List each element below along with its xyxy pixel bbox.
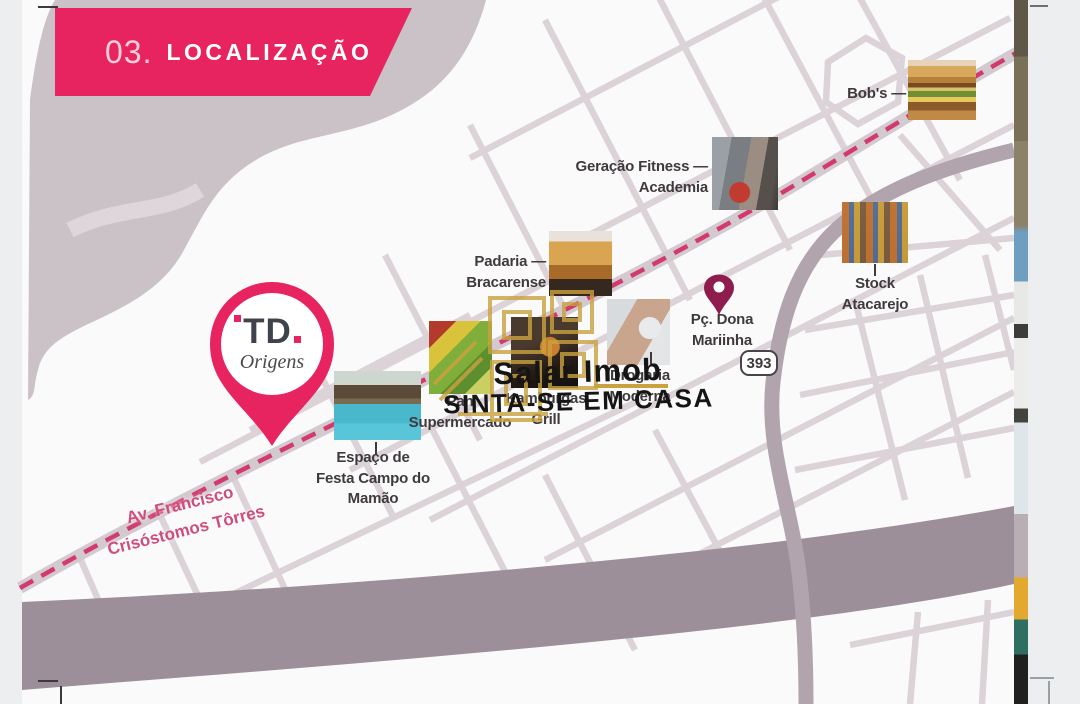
section-title: LOCALIZAÇÃO xyxy=(166,39,372,66)
next-image-strip xyxy=(1014,0,1028,704)
td-origens-pin: TD Origens xyxy=(207,280,337,450)
logo-accent-square xyxy=(234,315,241,322)
td-origens-logo: TD Origens xyxy=(221,293,323,395)
crop-mark-top-left xyxy=(38,6,58,8)
crop-mark-bottom-right-v xyxy=(1048,681,1050,704)
bobs-photo xyxy=(908,60,976,120)
section-banner: 03. LOCALIZAÇÃO xyxy=(55,8,412,96)
crop-mark-bottom-left-v xyxy=(60,686,62,704)
logo-dot-square xyxy=(294,336,301,343)
section-number: 03. xyxy=(105,34,152,71)
watermark-text: Salar Imob SINTA-SE EM CASA xyxy=(407,352,748,420)
crop-mark-bottom-left-h xyxy=(38,680,58,682)
crop-mark-bottom-right-h xyxy=(1030,677,1054,679)
stock-atacarejo-label: Stock Atacarejo xyxy=(815,274,935,315)
espaco-festa-label: Espaço de Festa Campo do Mamão xyxy=(303,448,443,510)
crop-mark-top-right xyxy=(1030,5,1048,7)
praca-pin-icon xyxy=(703,274,735,321)
geracao-fitness-label: Geração Fitness — Academia xyxy=(538,157,708,198)
location-map-page: 03. LOCALIZAÇÃO Av. Francisco Crisóstomo… xyxy=(0,0,1080,704)
bobs-label: Bob's — xyxy=(786,84,906,105)
stock-atacarejo-photo xyxy=(842,202,908,263)
geracao-fitness-photo xyxy=(712,137,778,210)
